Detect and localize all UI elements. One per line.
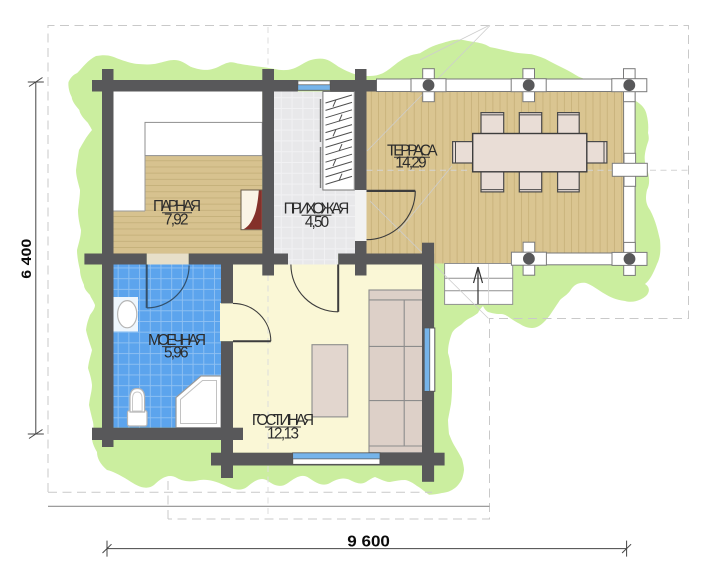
svg-text:12,13: 12,13 bbox=[267, 426, 299, 443]
svg-text:6 400: 6 400 bbox=[19, 238, 34, 278]
svg-text:14,29: 14,29 bbox=[395, 155, 426, 172]
svg-text:5,96: 5,96 bbox=[164, 345, 189, 362]
svg-text:4,50: 4,50 bbox=[305, 214, 329, 231]
svg-text:7,92: 7,92 bbox=[164, 211, 189, 228]
svg-text:9 600: 9 600 bbox=[347, 534, 390, 551]
